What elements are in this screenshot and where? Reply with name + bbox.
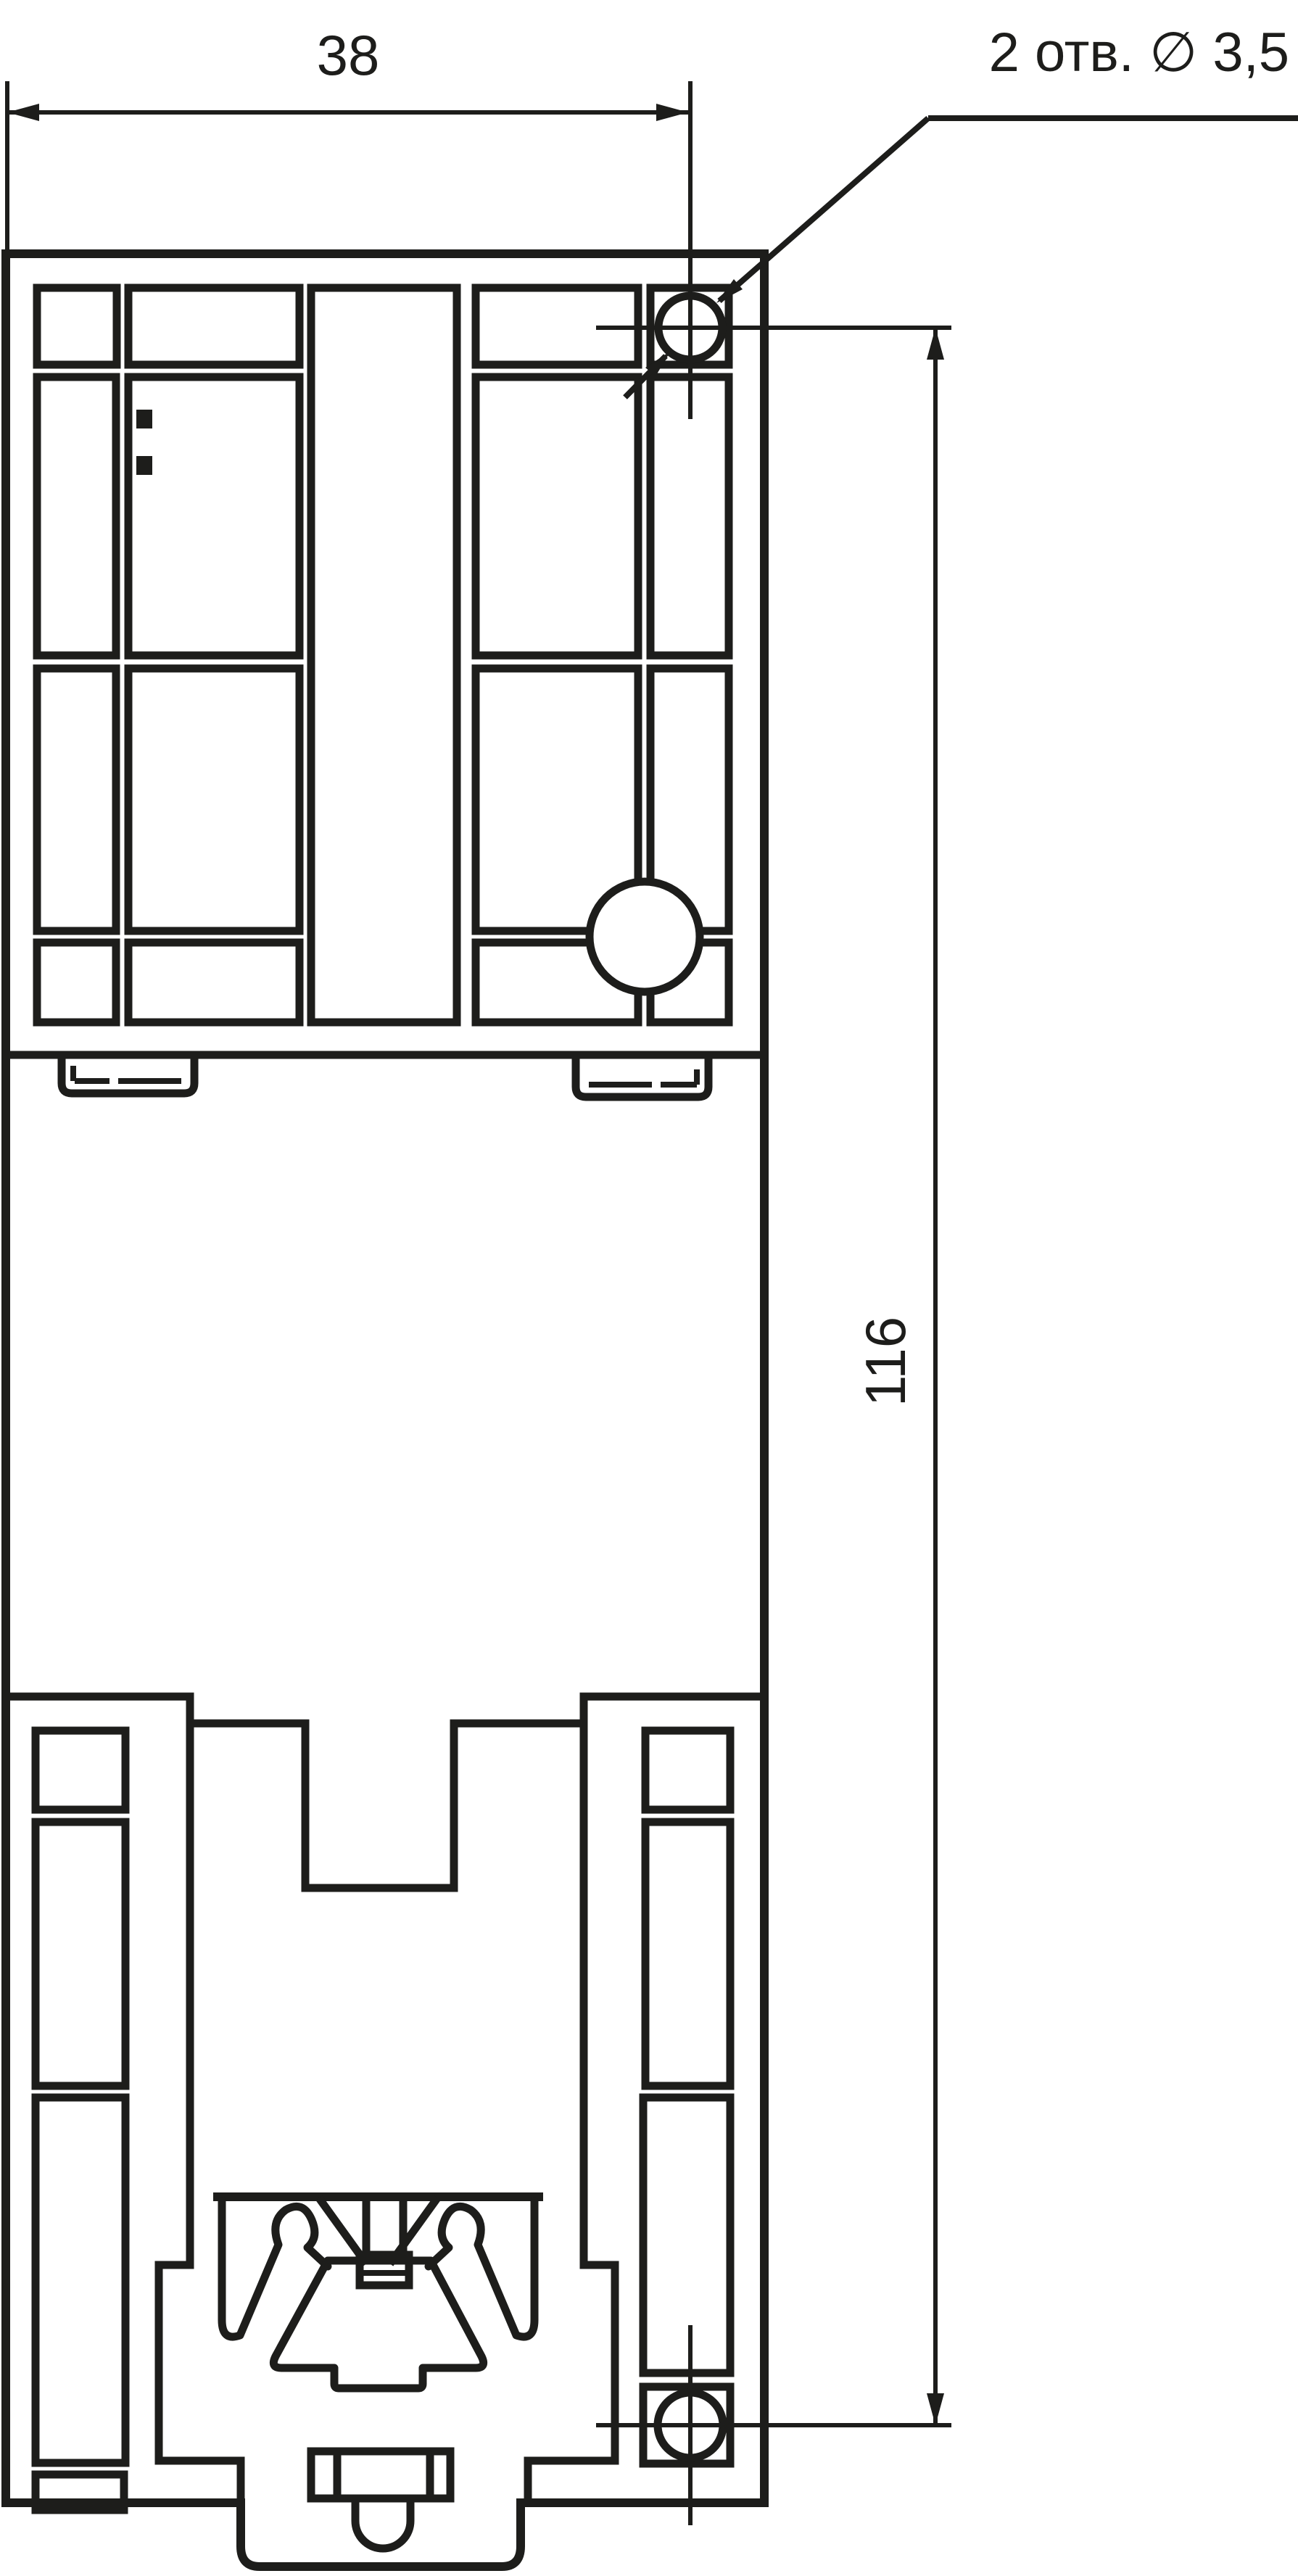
technical-drawing: 38 116 2 отв. ∅ 3,5 [0, 0, 1298, 2576]
arrowhead-top [927, 328, 944, 360]
terminal-cell [128, 668, 299, 931]
terminal-cell [37, 668, 116, 931]
clip-arm-left [222, 2201, 328, 2337]
slot-tab [136, 410, 152, 428]
column-cell [645, 1731, 730, 1810]
hole-callout-text: 2 отв. ∅ 3,5 [989, 22, 1289, 83]
terminal-cell [128, 943, 299, 1022]
lower-left-column [36, 1731, 125, 2510]
terminal-cell [128, 377, 299, 655]
clip-arm-right [429, 2201, 534, 2337]
clip-body [273, 2261, 483, 2388]
height-dimension-text: 116 [853, 1317, 917, 1407]
slot-tab [136, 456, 152, 475]
clip-pull-tongue [355, 2503, 410, 2548]
latch-pockets [62, 1059, 708, 1097]
column-cell [36, 1731, 125, 1810]
dimension-width: 38 [7, 23, 688, 249]
channel-wall-left [159, 1697, 241, 2503]
terminal-cell [128, 288, 299, 365]
round-opening [590, 882, 700, 992]
column-cell [643, 2097, 730, 2373]
center-slot [311, 288, 457, 1022]
pocket-left [62, 1059, 194, 1093]
dimension-height: 116 [853, 328, 944, 2425]
channel-lip [190, 1723, 584, 1888]
callout-leader [719, 118, 928, 301]
pocket-right [576, 1059, 708, 1097]
channel-wall-right [528, 1697, 615, 2503]
column-cell [36, 1822, 125, 2086]
arrowhead-right [656, 104, 688, 121]
drawing-canvas: 38 116 2 отв. ∅ 3,5 [0, 0, 1298, 2576]
column-cell [36, 2097, 125, 2463]
terminal-cell [476, 377, 638, 655]
mounting-hole-bottom [596, 2325, 951, 2525]
terminal-cell [37, 943, 116, 1022]
din-rail-clip [218, 2197, 539, 2548]
width-dimension-text: 38 [317, 23, 380, 87]
terminal-cell [37, 377, 116, 655]
arrowhead-left [7, 104, 39, 121]
column-cell [645, 1822, 730, 2086]
terminal-cell [37, 288, 117, 365]
lower-right-column [643, 1731, 730, 2373]
top-terminal-block [37, 288, 729, 1022]
arrowhead-bottom [927, 2393, 944, 2425]
